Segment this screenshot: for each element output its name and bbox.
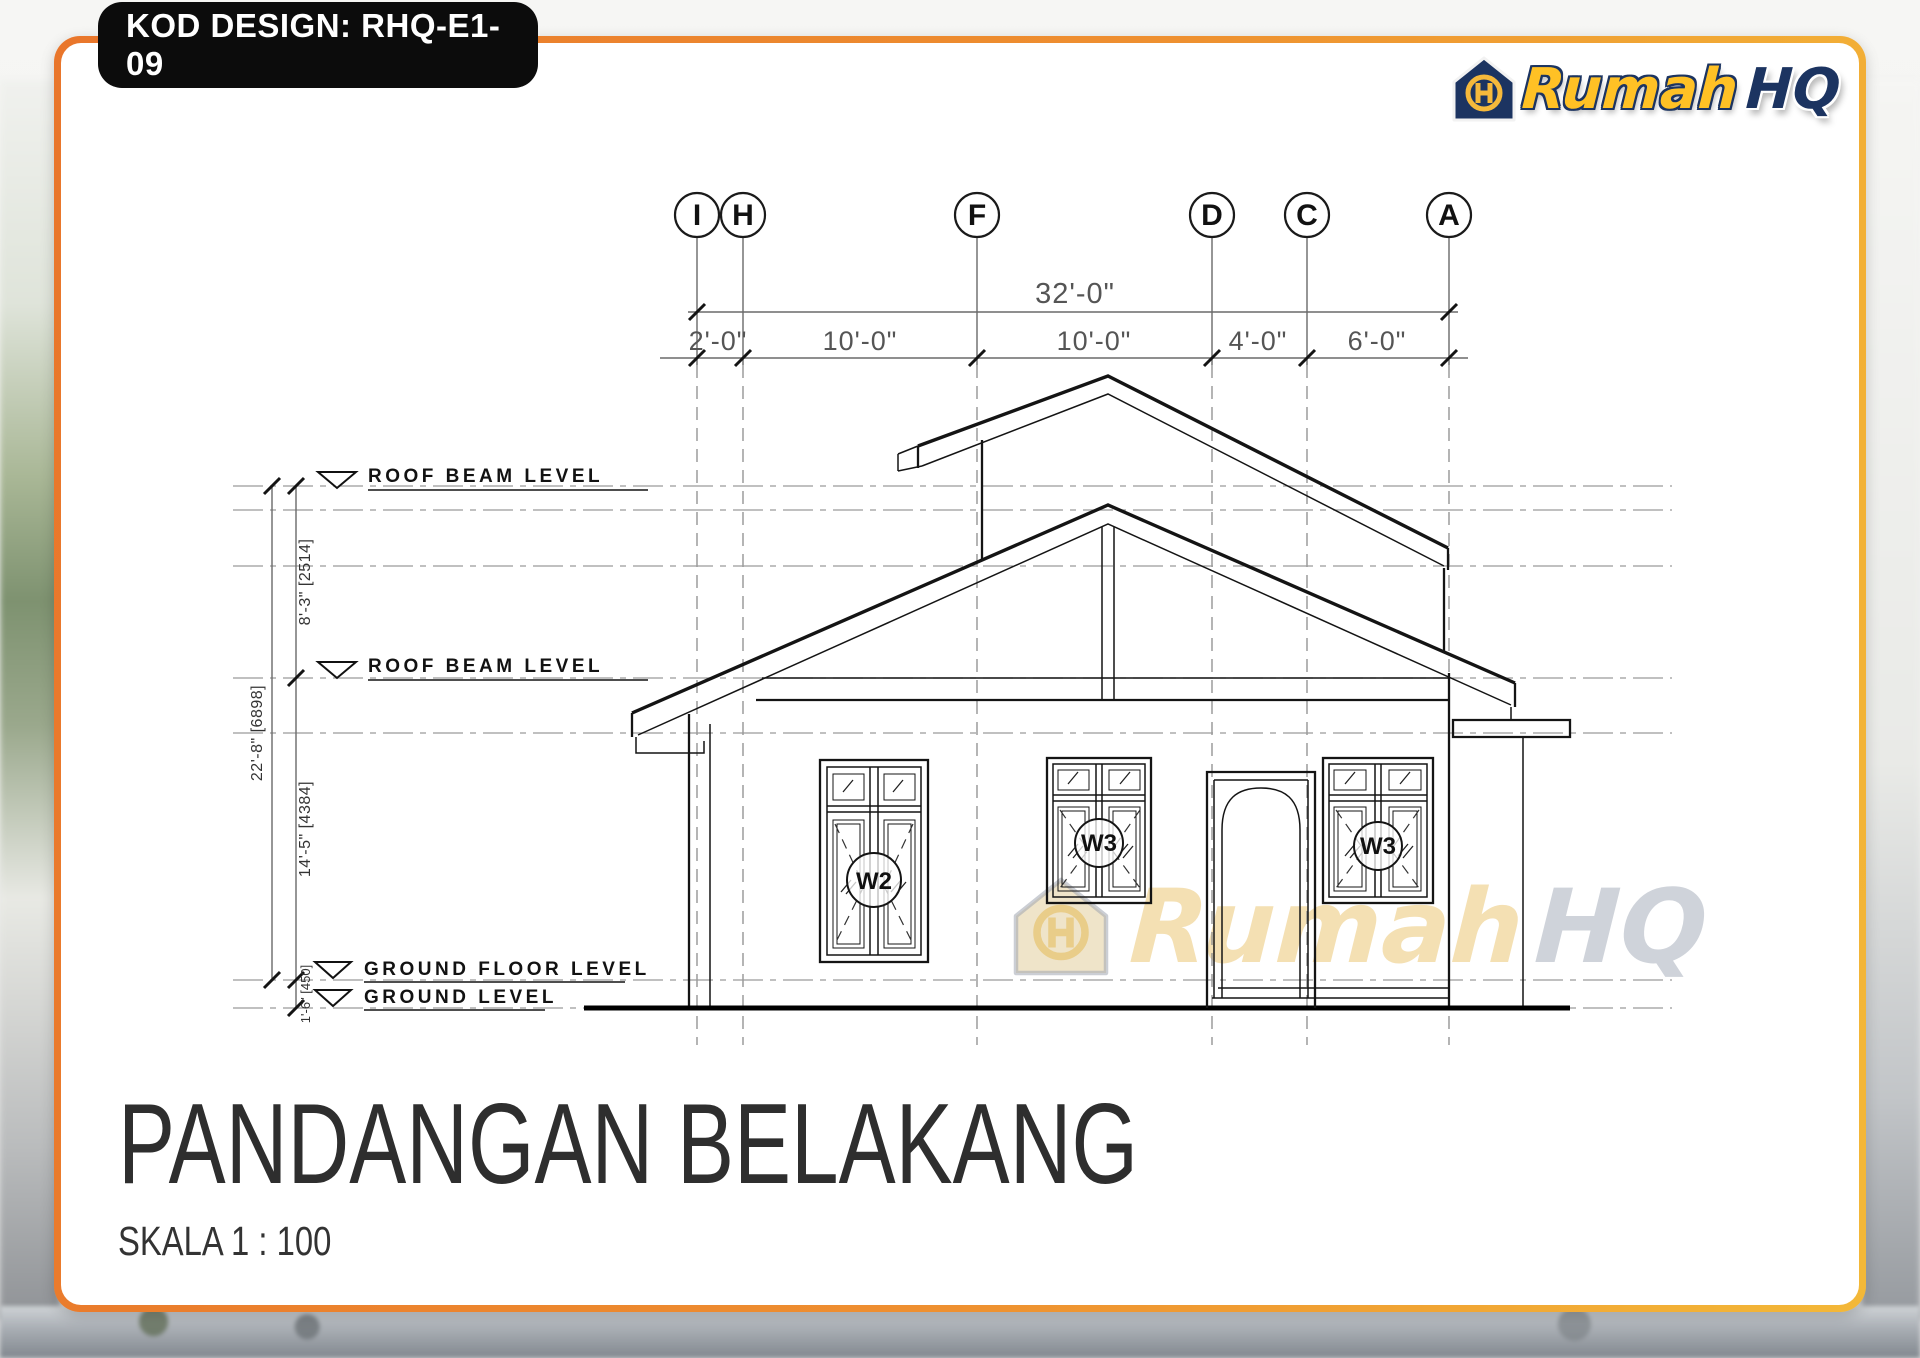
grid-label: H <box>732 199 754 232</box>
grid-label: C <box>1296 199 1318 232</box>
window-label-w3: W3 <box>1081 830 1117 857</box>
drawing-title: PANDANGAN BELAKANG <box>118 1088 1138 1202</box>
grid-label: D <box>1201 199 1223 232</box>
house-elevation <box>584 376 1570 1008</box>
window-label-w2: W2 <box>856 868 892 895</box>
window-w3-middle: W3 <box>1047 758 1151 903</box>
dim-segment-text: 10'-0" <box>1057 326 1132 356</box>
vdim-wall: 14'-5" [4384] <box>297 781 314 877</box>
page: KOD DESIGN: RHQ-E1-09 Rumah HQ Rumah HQ <box>0 0 1920 1358</box>
level-label-roof-beam-2: ROOF BEAM LEVEL <box>368 656 603 677</box>
dim-overall-text: 32'-0" <box>1035 278 1115 310</box>
house-logo-icon <box>1452 56 1516 124</box>
dimension-row-overall: 32'-0" <box>688 278 1458 320</box>
dim-segment-text: 6'-0" <box>1348 326 1407 356</box>
brand-word-hq: HQ <box>1744 62 1841 118</box>
level-marker-triangle <box>318 662 356 678</box>
level-label-ground-floor: GROUND FLOOR LEVEL <box>364 959 650 980</box>
brand-word-rumah: Rumah <box>1521 62 1740 118</box>
level-marker-triangle <box>315 962 351 978</box>
upper-roof-outer <box>918 376 1448 548</box>
dimension-row-segments: 2'-0" 10'-0" 10'-0" 4'-0" 6'-0" <box>660 326 1468 366</box>
vdim-overall: 22'-8" [6898] <box>249 685 266 781</box>
main-roof-inner <box>638 524 1511 735</box>
grid-bubbles: I H F D C A <box>675 193 1471 237</box>
main-roof-outer <box>632 505 1515 713</box>
vertical-dimensions: 22'-8" [6898] 8'-3" [2514] 14'-5" [4384]… <box>249 478 314 1023</box>
grid-label: F <box>968 199 986 232</box>
side-awning-slab <box>1453 720 1570 737</box>
level-label-ground: GROUND LEVEL <box>364 987 557 1008</box>
design-code-badge: KOD DESIGN: RHQ-E1-09 <box>98 2 538 88</box>
window-w3-right: W3 <box>1323 758 1433 903</box>
brand-logo: Rumah HQ <box>1452 56 1840 124</box>
drawing-scale: SKALA 1 : 100 <box>118 1218 1206 1265</box>
dim-segment-text: 4'-0" <box>1229 326 1288 356</box>
dim-segment-text: 2'-0" <box>689 326 748 356</box>
level-marker-triangle <box>315 990 351 1006</box>
vdim-roof: 8'-3" [2514] <box>297 539 314 626</box>
entrance-steps <box>1212 988 1449 998</box>
level-lines <box>233 486 1672 1008</box>
grid-label: A <box>1438 199 1460 232</box>
window-w2: W2 <box>820 760 928 962</box>
upper-roof-inner <box>922 394 1444 566</box>
window-label-w3: W3 <box>1360 833 1396 860</box>
title-block: PANDANGAN BELAKANG SKALA 1 : 100 <box>118 1088 1478 1265</box>
level-label-roof-beam-1: ROOF BEAM LEVEL <box>368 466 603 487</box>
level-labels: ROOF BEAM LEVEL ROOF BEAM LEVEL GROUND F… <box>315 466 650 1010</box>
gable-post <box>1102 527 1114 699</box>
grid-label: I <box>693 199 701 232</box>
design-code-text: KOD DESIGN: RHQ-E1-09 <box>98 7 538 83</box>
dim-segment-text: 10'-0" <box>823 326 898 356</box>
vdim-plinth: 1'-6" [450] <box>298 965 313 1023</box>
back-door <box>1207 772 1315 1008</box>
